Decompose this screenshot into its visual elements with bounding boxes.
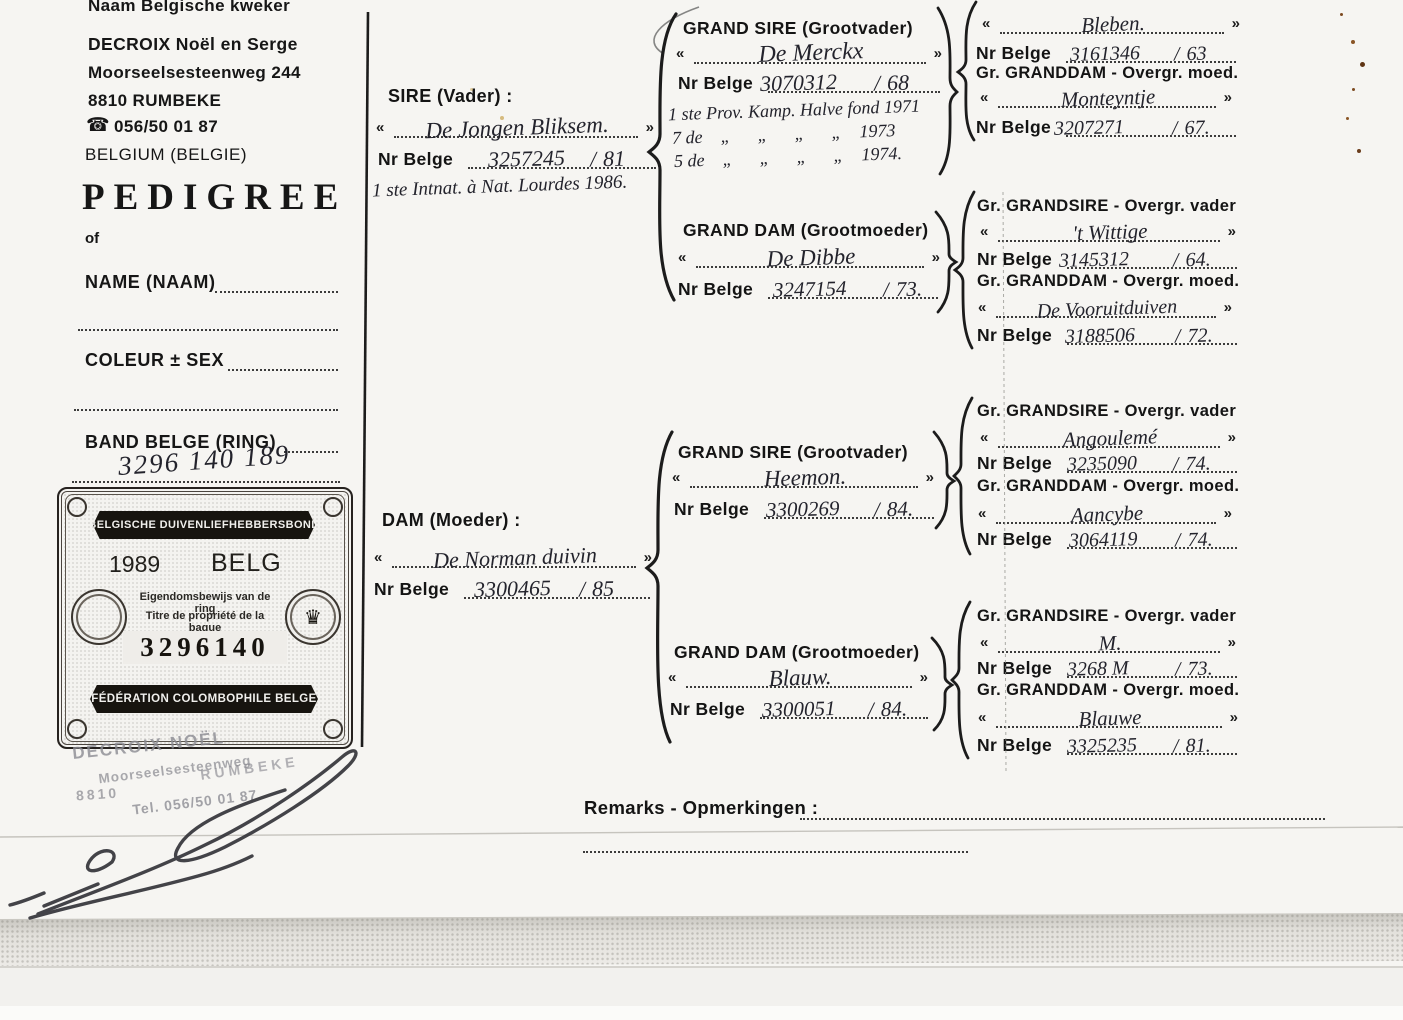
corner-flourish [323, 497, 343, 517]
scan-speck [1340, 13, 1343, 16]
ggp3-sire-header: Gr. GRANDSIRE - Overgr. vader [977, 402, 1236, 421]
brace-open-ggp3 [954, 398, 972, 554]
scan-edge-light-band [0, 968, 1403, 1006]
close-guillemet: » [1228, 429, 1236, 446]
slash: / [874, 497, 880, 521]
grand-sire-maternal-name: Heemon. [698, 461, 913, 494]
certificate-ring-number: 3296140 [123, 631, 287, 664]
slash: / [1173, 453, 1179, 475]
ring-year: /84. [874, 496, 914, 522]
breeder-country: BELGIUM (BELGIE) [85, 145, 247, 165]
grand-sire-maternal-ring-row: Nr Belge 3300269 /84. [674, 494, 936, 522]
year-value: 81 [603, 146, 626, 172]
nr-belge-label: Nr Belge [977, 249, 1052, 270]
close-guillemet: » [646, 119, 654, 136]
open-guillemet: « [668, 669, 676, 686]
year-value: 81. [1185, 735, 1211, 758]
grand-dam-maternal-name: Blauw. [694, 661, 907, 694]
year-value: 73. [1187, 658, 1213, 681]
nr-belge-label: Nr Belge [977, 325, 1052, 346]
slash: / [883, 277, 889, 301]
grand-dam-paternal-name: De Dibbe [704, 241, 919, 274]
remarks-line-1 [800, 818, 1325, 820]
open-guillemet: « [376, 119, 384, 136]
ggp4-dam-header: Gr. GRANDDAM - Overgr. moed. [977, 681, 1239, 700]
open-guillemet: « [980, 89, 988, 106]
certificate-country-code: BELG [211, 549, 282, 578]
nr-belge-label: Nr Belge [670, 699, 745, 720]
grand-dam-paternal-header: GRAND DAM (Grootmoeder) [683, 220, 928, 241]
slash: / [1174, 43, 1180, 65]
remarks-line-2 [583, 851, 968, 853]
brace-open-ggp1 [958, 2, 976, 140]
corner-flourish [67, 497, 87, 517]
scan-speck [500, 116, 504, 120]
sire-ring-row: Nr Belge 3257245 /81 [378, 144, 658, 172]
colour-field-line [228, 369, 338, 371]
of-label: of [85, 230, 99, 247]
nr-belge-label: Nr Belge [976, 117, 1051, 138]
corner-flourish [67, 719, 87, 739]
ring-number: 3268 M [1067, 657, 1129, 682]
close-guillemet: » [1230, 709, 1238, 726]
grand-dam-paternal-name-row: « » De Dibbe [678, 240, 940, 272]
breeder-label: Naam Belgische kweker [88, 0, 348, 16]
colour-field-line-2 [74, 409, 338, 411]
nr-belge-label: Nr Belge [674, 499, 749, 520]
nr-belge-label: Nr Belge [977, 658, 1052, 679]
left-medallion [71, 589, 127, 645]
ring-number: 3145312 [1059, 248, 1130, 273]
brace-close-grand-dam-maternal [932, 638, 952, 730]
scan-speck [1351, 40, 1355, 44]
name-field-line-2 [78, 329, 338, 331]
grand-sire-paternal-ring-row: Nr Belge 3070312 /68 [678, 68, 942, 96]
ggp1-dam-name: Monteyntje [1006, 82, 1211, 114]
ring-number: 3070312 [760, 69, 838, 97]
ring-year: /81 [590, 146, 626, 173]
scan-speck [1357, 149, 1361, 153]
slash: / [579, 576, 586, 601]
grand-sire-maternal-name-row: « » Heemon. [672, 460, 934, 492]
ring-number: 3300051 [762, 696, 836, 723]
open-guillemet: « [676, 45, 684, 62]
band-field-line-2 [72, 481, 340, 483]
nr-belge-label: Nr Belge [976, 43, 1051, 64]
sire-note: 1 ste Intnat. à Nat. Lourdes 1986. [372, 172, 628, 203]
colour-sex-label: COLEUR ± SEX [85, 350, 224, 371]
close-guillemet: » [644, 549, 652, 566]
open-guillemet: « [978, 299, 986, 316]
dam-header: DAM (Moeder) : [382, 510, 521, 531]
ggp1-sire-name: Bleben. [1008, 8, 1219, 40]
year-value: 85 [592, 576, 615, 602]
ring-year: /85 [579, 576, 615, 603]
brace-open-ggp2 [955, 192, 974, 348]
ring-number: 3207271 [1054, 116, 1125, 141]
ring-year: /81. [1173, 735, 1211, 759]
dam-name-row: « » De Norman duivin [374, 540, 652, 572]
dam-ring-row: Nr Belge 3300465 /85 [374, 574, 652, 602]
nr-belge-label: Nr Belge [977, 453, 1052, 474]
remarks-label: Remarks - Opmerkingen : [584, 797, 818, 819]
ggp2-dam-header: Gr. GRANDDAM - Overgr. moed. [977, 272, 1239, 291]
federation-name-fr: FÉDÉRATION COLOMBOPHILE BELGE [91, 693, 316, 705]
ring-year: /73. [1175, 658, 1213, 682]
close-guillemet: » [920, 669, 928, 686]
year-value: 84. [881, 696, 908, 721]
ring-number: 3247154 [773, 276, 847, 303]
scan-fold-line [0, 827, 1403, 837]
year-value: 84. [887, 496, 914, 521]
ring-number: 3235090 [1067, 452, 1138, 477]
sire-name: De Jongen Bliksem. [402, 111, 633, 145]
close-guillemet: » [934, 45, 942, 62]
slash: / [1175, 325, 1181, 347]
year-value: 73. [896, 276, 923, 301]
ggp2-sire-ring-row: Nr Belge 3145312 /64. [977, 244, 1239, 272]
ggp2-dam-ring-row: Nr Belge 3188506 /72. [977, 320, 1239, 348]
pedigree-scan: { "breeder": { "label": "Naam Belgische … [0, 0, 1403, 1020]
close-guillemet: » [932, 249, 940, 266]
ring-number: 3300269 [766, 496, 840, 523]
stamp-postal: 8810 [75, 785, 119, 804]
nr-belge-label: Nr Belge [678, 73, 753, 94]
federation-banner-fr: FÉDÉRATION COLOMBOPHILE BELGE [90, 685, 318, 713]
grand-dam-maternal-name-row: « » Blauw. [668, 660, 928, 692]
close-guillemet: » [1224, 299, 1232, 316]
ring-number: 3257245 [488, 145, 566, 173]
ring-year: /68 [874, 70, 910, 97]
sire-name-row: « » De Jongen Bliksem. [376, 110, 654, 142]
close-guillemet: » [1228, 223, 1236, 240]
ring-ownership-certificate: BELGISCHE DUIVENLIEFHEBBERSBOND 1989 BEL… [57, 487, 353, 749]
ggp4-sire-header: Gr. GRANDSIRE - Overgr. vader [977, 607, 1236, 626]
scan-speck [1360, 62, 1365, 67]
slash: / [1175, 529, 1181, 551]
ring-year: /72. [1175, 325, 1213, 349]
nr-belge-label: Nr Belge [977, 735, 1052, 756]
open-guillemet: « [678, 249, 686, 266]
brace-close-grand-sire-maternal [934, 432, 954, 528]
open-guillemet: « [982, 15, 990, 32]
ring-number: 3064119 [1069, 528, 1138, 553]
open-guillemet: « [978, 709, 986, 726]
column-separator-line [362, 12, 368, 747]
breeder-block: Naam Belgische kweker DECROIX Noël en Se… [0, 0, 360, 180]
ring-year: /67. [1172, 117, 1210, 141]
ring-year: /63 [1174, 43, 1207, 67]
name-field-line [215, 291, 338, 293]
certificate-year: 1989 [109, 551, 160, 578]
federation-name-nl: BELGISCHE DUIVENLIEFHEBBERSBOND [88, 519, 319, 531]
year-value: 74. [1185, 453, 1211, 476]
close-guillemet: » [1224, 89, 1232, 106]
year-value: 67. [1184, 117, 1210, 140]
close-guillemet: » [1224, 505, 1232, 522]
ggp1-sire-ring-row: Nr Belge 3161346 /63 [976, 38, 1238, 66]
year-value: 64. [1185, 249, 1211, 272]
grand-sire-paternal-name-row: « » De Merckx [676, 36, 942, 68]
nr-belge-label: Nr Belge [678, 279, 753, 300]
open-guillemet: « [672, 469, 680, 486]
nr-belge-label: Nr Belge [378, 149, 453, 170]
scan-edge-band [0, 913, 1403, 967]
slash: / [590, 146, 597, 171]
year-value: 74. [1187, 529, 1213, 552]
grand-sire-paternal-name: De Merckx [702, 36, 921, 71]
slash: / [1175, 658, 1181, 680]
scan-edge-bottom [0, 1006, 1403, 1020]
page-title: PEDIGREE [82, 176, 347, 219]
slash: / [874, 70, 881, 95]
nr-belge-label: Nr Belge [977, 529, 1052, 550]
year-value: 63 [1186, 43, 1207, 66]
ring-year: /64. [1173, 249, 1211, 273]
ggp1-dam-name-row: « » Monteyntje [980, 80, 1232, 112]
federation-banner-nl: BELGISCHE DUIVENLIEFHEBBERSBOND [93, 511, 315, 539]
slash: / [1172, 117, 1178, 139]
ring-year: /84. [868, 696, 908, 722]
ggp3-sire-ring-row: Nr Belge 3235090 /74. [977, 448, 1239, 476]
ggp4-dam-name-row: « » Blauwe [978, 700, 1238, 732]
close-guillemet: » [1228, 634, 1236, 651]
scan-speck [1352, 88, 1355, 91]
ggp1-dam-ring-row: Nr Belge 3207271 /67. [976, 112, 1238, 140]
breeder-phone: 056/50 01 87 [114, 117, 218, 137]
close-guillemet: » [1232, 15, 1240, 32]
breeder-street: Moorseelsesteenweg 244 [88, 63, 301, 83]
ring-number: 3300465 [474, 575, 552, 603]
ggp2-dam-name-row: « » De Vooruitduiven [978, 290, 1232, 322]
open-guillemet: « [980, 429, 988, 446]
grand-dam-paternal-ring-row: Nr Belge 3247154 /73. [678, 274, 940, 302]
open-guillemet: « [980, 634, 988, 651]
ring-number: 3325235 [1067, 734, 1138, 759]
ggp2-sire-name-row: « » 't Wittige [980, 214, 1236, 246]
ggp3-dam-header: Gr. GRANDDAM - Overgr. moed. [977, 477, 1239, 496]
slash: / [1173, 735, 1179, 757]
close-guillemet: » [926, 469, 934, 486]
stamp-phone: Tel. 056/50 01 87 [131, 786, 258, 817]
ring-number: 3188506 [1065, 324, 1136, 349]
breeder-name: DECROIX Noël en Serge [88, 34, 298, 55]
ggp3-dam-ring-row: Nr Belge 3064119 /74. [977, 524, 1239, 552]
name-label: NAME (NAAM) [85, 272, 216, 293]
ggp1-sire-name-row: « » Bleben. [982, 6, 1240, 38]
corner-flourish [323, 719, 343, 739]
ggp4-sire-ring-row: Nr Belge 3268 M /73. [977, 653, 1239, 681]
ring-year: /74. [1173, 453, 1211, 477]
ggp4-dam-ring-row: Nr Belge 3325235 /81. [977, 730, 1239, 758]
scan-speck [470, 88, 473, 91]
sire-header: SIRE (Vader) : [388, 86, 513, 107]
nr-belge-label: Nr Belge [374, 579, 449, 600]
ring-year: /73. [883, 276, 923, 302]
open-guillemet: « [978, 505, 986, 522]
year-value: 72. [1187, 325, 1213, 348]
ring-year: /74. [1175, 529, 1213, 553]
open-guillemet: « [980, 223, 988, 240]
scan-speck [1346, 117, 1349, 120]
year-value: 68 [887, 70, 910, 96]
slash: / [868, 697, 874, 721]
band-field-line [284, 451, 338, 453]
brace-open-ggp4 [952, 602, 970, 758]
dam-name: De Norman duivin [400, 541, 631, 575]
phone-icon: ☎ [86, 114, 110, 137]
grand-dam-maternal-ring-row: Nr Belge 3300051 /84. [670, 694, 930, 722]
crown-icon: ♛ [304, 605, 322, 630]
slash: / [1173, 249, 1179, 271]
breeder-city: 8810 RUMBEKE [88, 91, 221, 111]
open-guillemet: « [374, 549, 382, 566]
right-medallion: ♛ [285, 589, 341, 645]
